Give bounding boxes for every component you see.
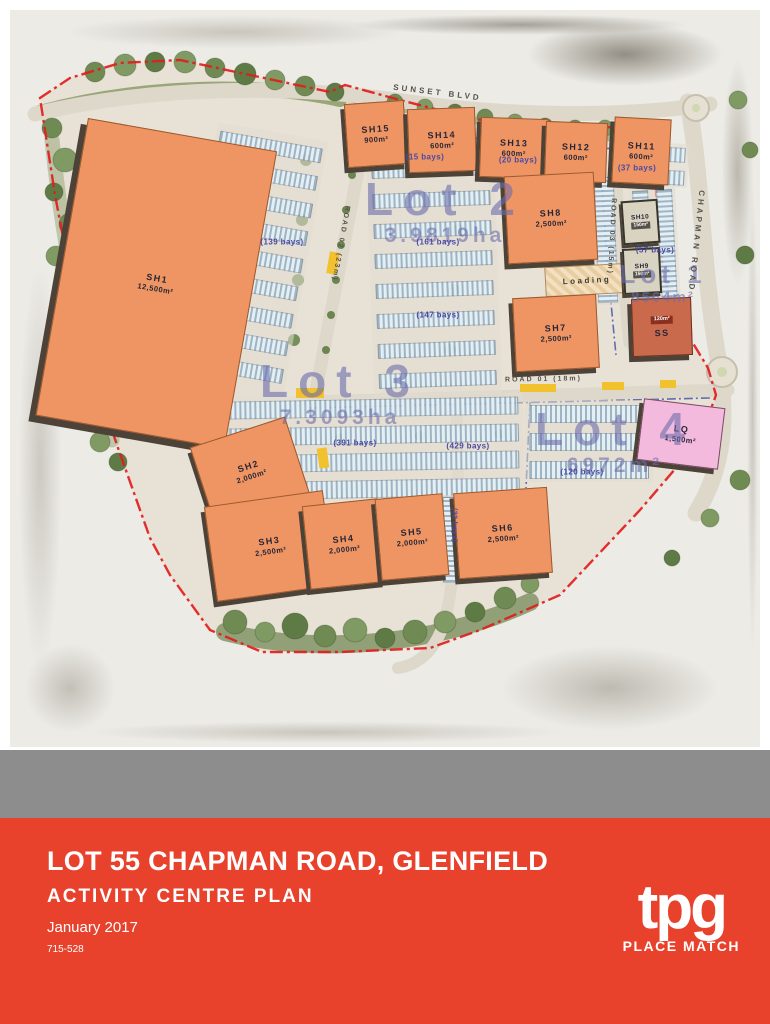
building-area-label: 600m² [629,152,654,161]
bays-label-sunset-east: (20 bays) [499,156,537,165]
building-label: SH15 [361,124,390,135]
building-sh7: SH7 2,500m² [512,294,600,372]
bays-label-sunset-west: (15 bays) [406,153,444,162]
building-label: SS [655,328,670,338]
plan-subtitle: ACTIVITY CENTRE PLAN [47,886,314,908]
building-sh4: SH4 2,000m² [302,498,386,589]
building-label: SH7 [545,323,567,333]
building-area-label: 2,500m² [255,546,287,558]
plan-date: January 2017 [47,919,138,936]
bays-label-northeast: (37 bays) [618,164,656,173]
tpg-logo-tagline: PLACE MATCH [623,938,740,954]
lot3-label: Lot 3 7.3093ha [240,360,440,430]
bays-label-lot2-upper: (161 bays) [416,238,459,247]
bays-label-sh6-west: (32 bays) [451,508,458,542]
bays-label-lot1: (57 bays) [636,246,674,255]
bays-label-lot3: (391 bays) [333,439,376,448]
building-label: SH6 [491,523,514,534]
building-label: SH14 [427,130,456,140]
building-label: SH5 [400,527,423,538]
bays-label-lot4: (120 bays) [560,468,603,477]
building-sh11: SH11 600m² [611,117,671,186]
building-area-label: 12,500m² [137,282,174,296]
lot-name: Lot 3 [240,360,440,404]
lot-name: Lot 2 [345,178,545,222]
building-area-label: 600m² [430,141,454,149]
lot1-label: Lot 1 8564m² [608,262,718,306]
lot-name: Lot 4 [530,408,700,452]
title-block: LOT 55 CHAPMAN ROAD, GLENFIELD ACTIVITY … [0,818,770,1024]
building-area-label: 2,500m² [487,534,519,544]
path-marking [520,384,556,392]
building-area-label: 120m² [651,316,673,324]
plan-title: LOT 55 CHAPMAN ROAD, GLENFIELD [47,846,548,877]
building-sh10: SH10 150m² [621,199,661,245]
building-label: SH12 [562,142,591,152]
building-area-label: 2,000m² [329,544,361,555]
street-label-road01: ROAD 01 (18m) [505,375,582,383]
building-area-label: 900m² [364,135,389,144]
building-sh5: SH5 2,000m² [375,493,450,581]
building-label: SH11 [628,141,656,151]
building-area-label: 150m² [631,222,650,230]
lot-area: 6972m² [530,454,700,478]
site-plan-map: SH1 12,500m² SH15 900m² SH14 600m² SH13 … [10,10,760,747]
building-ss: 120m² SS [631,297,693,357]
divider-band [0,750,770,818]
lot-area: 7.3093ha [240,406,440,430]
plan-reference-number: 715-528 [47,944,84,955]
bays-label-lot2-lower: (147 bays) [416,311,459,320]
building-sh15: SH15 900m² [344,100,408,168]
building-sh13: SH13 600m² [479,117,549,179]
building-area-label: 600m² [564,153,588,161]
bays-label-lot3-east: (429 bays) [446,442,489,451]
building-sh14: SH14 600m² [407,107,477,173]
tpg-logo: tpg PLACE MATCH [623,880,740,954]
path-marking [602,382,624,390]
building-area-label: 2,000m² [396,537,428,547]
path-marking [660,380,676,388]
building-sh6: SH6 2,500m² [453,487,553,579]
tpg-logo-brand: tpg [623,880,740,936]
lot-area: 8564m² [608,289,718,306]
building-label: SH13 [500,138,529,148]
bays-label-sh1-east: (139 bays) [260,238,303,247]
lot-name: Lot 1 [608,262,718,287]
loading-label: Loading [562,274,611,286]
plan-page: SH1 12,500m² SH15 900m² SH14 600m² SH13 … [0,0,770,1024]
lot4-label: Lot 4 6972m² [530,408,700,478]
building-area-label: 2,500m² [540,334,572,343]
building-label: SH10 [631,214,650,222]
